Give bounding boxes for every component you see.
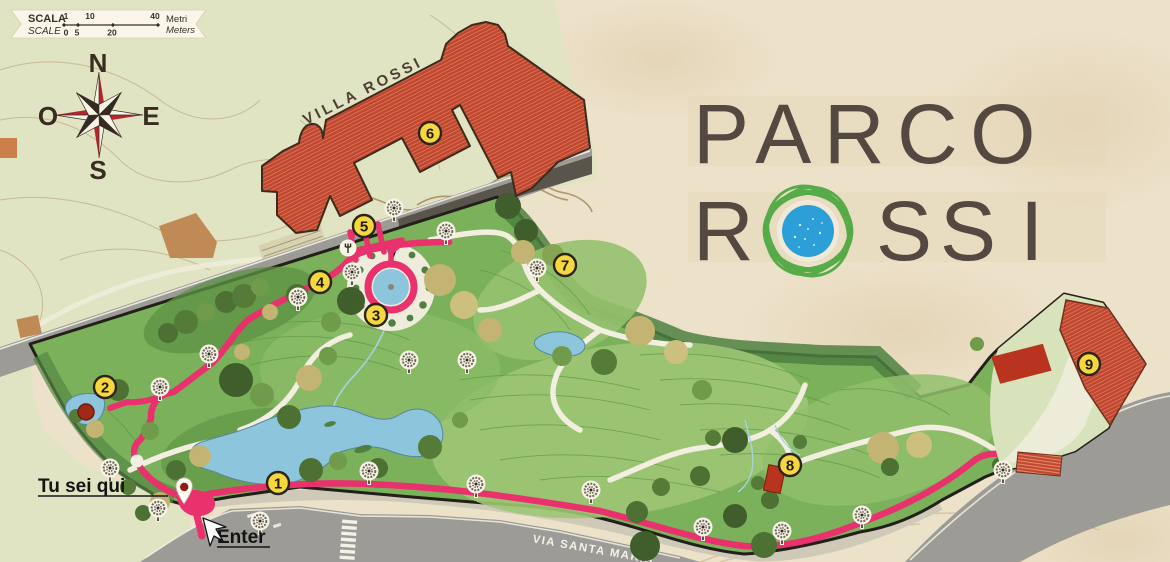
svg-text:10: 10 bbox=[85, 11, 95, 21]
svg-text:N: N bbox=[89, 48, 108, 78]
svg-text:S: S bbox=[876, 184, 932, 278]
svg-text:SCALA: SCALA bbox=[28, 13, 66, 25]
svg-text:9: 9 bbox=[1085, 357, 1093, 374]
svg-text:1: 1 bbox=[64, 11, 69, 21]
svg-text:SCALE: SCALE bbox=[28, 26, 61, 37]
svg-text:3: 3 bbox=[372, 308, 380, 325]
svg-text:1: 1 bbox=[274, 476, 282, 493]
svg-text:5: 5 bbox=[360, 219, 368, 236]
svg-text:Metri: Metri bbox=[166, 14, 187, 25]
svg-text:S: S bbox=[89, 155, 106, 185]
svg-text:R: R bbox=[693, 184, 754, 278]
svg-text:6: 6 bbox=[426, 126, 434, 143]
svg-text:Enter: Enter bbox=[217, 527, 266, 548]
svg-text:S: S bbox=[940, 184, 996, 278]
svg-text:E: E bbox=[142, 101, 159, 131]
svg-text:8: 8 bbox=[786, 458, 794, 475]
svg-text:O: O bbox=[38, 101, 58, 131]
svg-text:0: 0 bbox=[64, 28, 69, 38]
svg-text:20: 20 bbox=[107, 28, 117, 38]
svg-text:PARCO: PARCO bbox=[693, 87, 1048, 181]
svg-text:40: 40 bbox=[150, 11, 160, 21]
svg-text:5: 5 bbox=[75, 28, 80, 38]
svg-text:I: I bbox=[1020, 184, 1043, 278]
svg-text:Meters: Meters bbox=[166, 25, 195, 36]
svg-text:7: 7 bbox=[561, 258, 569, 275]
svg-text:Tu sei qui: Tu sei qui bbox=[38, 476, 125, 497]
svg-text:2: 2 bbox=[101, 380, 109, 397]
svg-text:4: 4 bbox=[316, 275, 325, 292]
